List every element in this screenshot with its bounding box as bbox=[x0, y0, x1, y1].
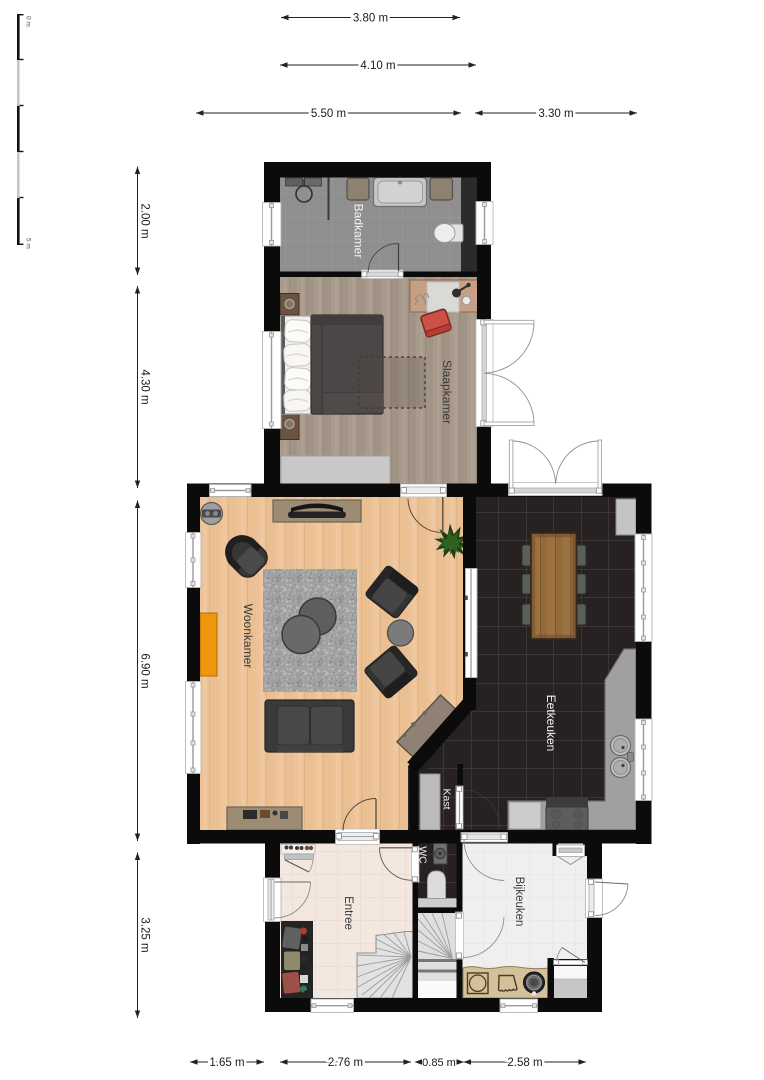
svg-text:Woonkamer: Woonkamer bbox=[241, 604, 255, 668]
svg-text:5.50 m: 5.50 m bbox=[311, 108, 346, 120]
svg-text:0.85 m: 0.85 m bbox=[422, 1057, 456, 1069]
svg-text:1.65 m: 1.65 m bbox=[209, 1057, 244, 1069]
svg-text:2.58 m: 2.58 m bbox=[507, 1057, 542, 1069]
svg-text:4.30 m: 4.30 m bbox=[139, 369, 151, 404]
svg-text:Bijkeuken: Bijkeuken bbox=[513, 877, 525, 927]
svg-text:Kast: Kast bbox=[441, 788, 453, 809]
svg-text:3.25 m: 3.25 m bbox=[139, 917, 151, 952]
svg-text:2.00 m: 2.00 m bbox=[139, 203, 151, 238]
svg-text:4.10 m: 4.10 m bbox=[360, 60, 395, 72]
svg-text:WC: WC bbox=[417, 846, 429, 864]
svg-text:3.80 m: 3.80 m bbox=[353, 13, 388, 25]
svg-text:6.90 m: 6.90 m bbox=[139, 653, 151, 688]
svg-text:3.30 m: 3.30 m bbox=[538, 108, 573, 120]
svg-text:Badkamer: Badkamer bbox=[352, 204, 366, 259]
svg-text:Eetkeuken: Eetkeuken bbox=[544, 695, 558, 752]
svg-text:5 m: 5 m bbox=[25, 238, 32, 249]
svg-text:0 m: 0 m bbox=[25, 16, 32, 27]
svg-text:Entree: Entree bbox=[342, 896, 354, 930]
svg-text:Slaapkamer: Slaapkamer bbox=[440, 360, 454, 424]
svg-text:2.76 m: 2.76 m bbox=[328, 1057, 363, 1069]
